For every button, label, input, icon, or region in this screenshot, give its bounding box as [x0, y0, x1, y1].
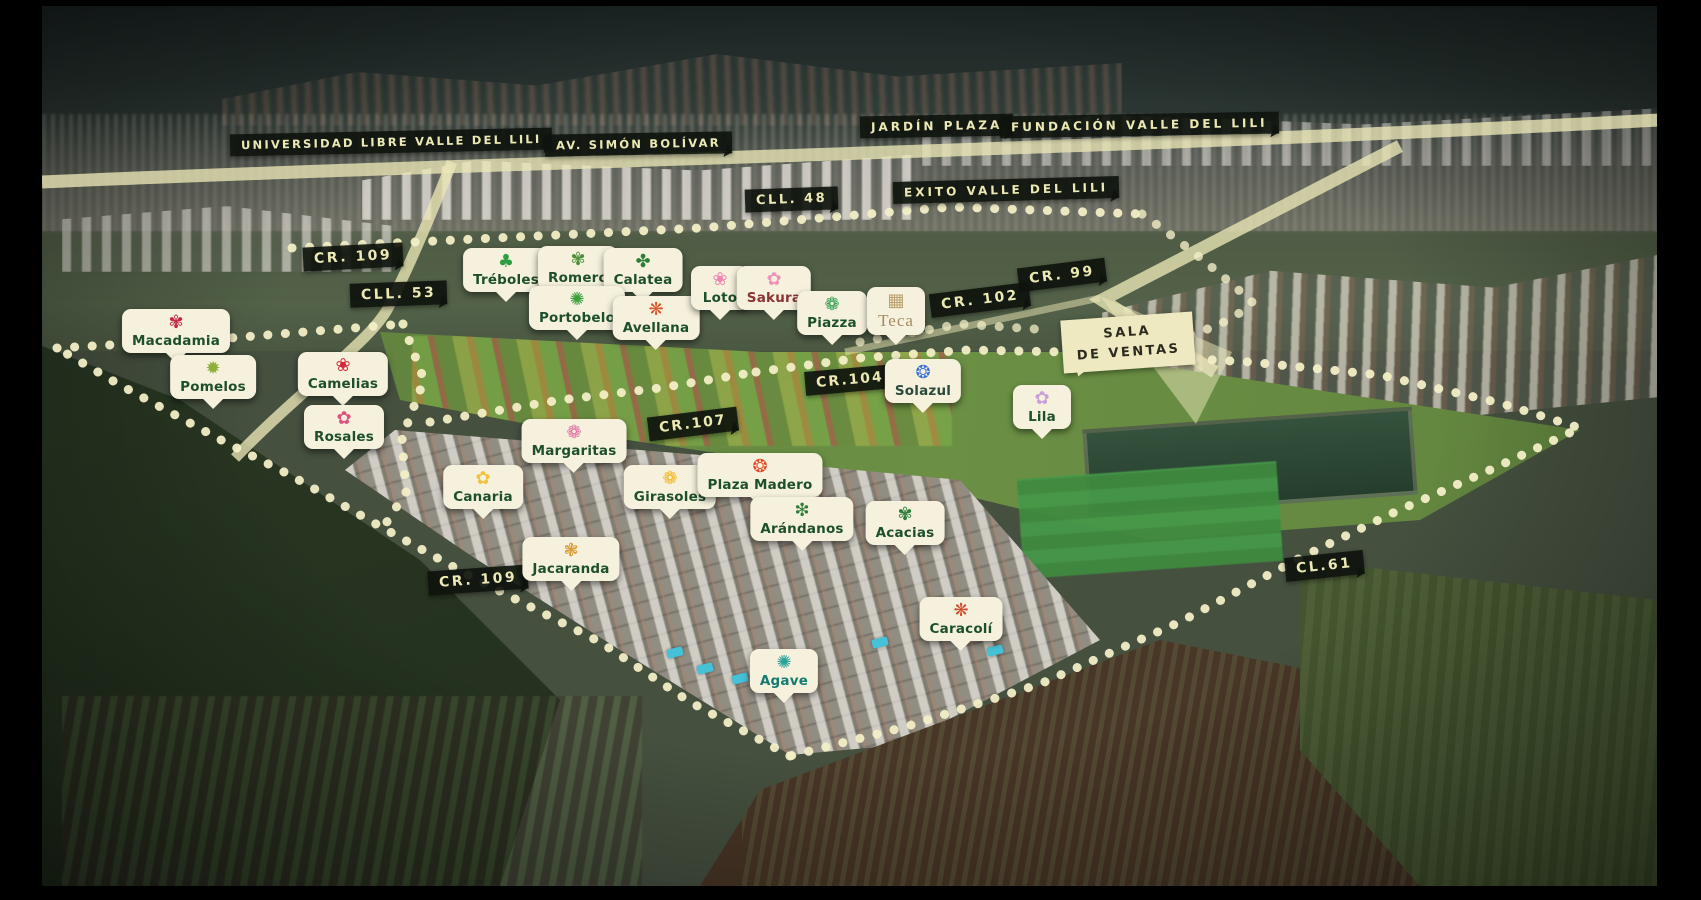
marker-label: Lila	[1023, 409, 1061, 425]
marker-macadamia[interactable]: ✾Macadamia	[122, 309, 230, 353]
marker-label: Agave	[760, 673, 808, 689]
marker-canaria[interactable]: ✿Canaria	[443, 465, 523, 509]
marker-label: Teca	[877, 311, 915, 331]
macadamia-flower-icon: ✾	[132, 314, 220, 333]
lila-flower-icon: ✿	[1023, 390, 1061, 409]
rosales-flower-icon: ✿	[314, 410, 374, 429]
marker-caracoli[interactable]: ❋Caracolí	[920, 597, 1003, 641]
letterbox-bottom	[0, 886, 1701, 900]
marker-plaza-madero[interactable]: ❂Plaza Madero	[698, 453, 823, 497]
letterbox-right	[1657, 0, 1701, 900]
marker-portobelo[interactable]: ✺Portobelo	[529, 286, 625, 330]
marker-label: Caracolí	[930, 621, 993, 637]
marker-label: Avellana	[623, 320, 690, 336]
dotted-boundary-west-inner	[383, 324, 424, 528]
marker-label: Camelias	[308, 376, 378, 392]
marker-camelias[interactable]: ❀Camelias	[298, 352, 388, 396]
canaria-flower-icon: ✿	[453, 470, 513, 489]
jacaranda-flower-icon: ❃	[532, 542, 609, 561]
marker-arandanos[interactable]: ❇Arándanos	[750, 497, 853, 541]
marker-jacaranda[interactable]: ❃Jacaranda	[522, 537, 619, 581]
marker-label: Tréboles	[473, 272, 539, 288]
marker-label: Pomelos	[180, 379, 246, 395]
marker-label: Plaza Madero	[708, 477, 813, 493]
masterplan-aerial-map: UNIVERSIDAD LIBRE VALLE DEL LILIAV. SIMÓ…	[0, 0, 1701, 900]
road-label-cll-48: CLL. 48	[745, 186, 839, 212]
marker-label: Sakura	[747, 290, 801, 306]
sala-line2: DE VENTAS	[1076, 341, 1181, 363]
acacias-flower-icon: ✾	[876, 506, 935, 525]
letterbox-left	[0, 0, 42, 900]
marker-agave[interactable]: ✺Agave	[750, 649, 818, 693]
marker-label: Jacaranda	[532, 561, 609, 577]
marker-acacias[interactable]: ✾Acacias	[866, 501, 945, 545]
road-label-av-simon-bolivar: AV. SIMÓN BOLÍVAR	[545, 131, 732, 156]
agave-flower-icon: ✺	[760, 654, 808, 673]
marker-pomelos[interactable]: ✹Pomelos	[170, 355, 256, 399]
marker-label: Rosales	[314, 429, 374, 445]
pomelos-flower-icon: ✹	[180, 360, 246, 379]
marker-label: Acacias	[876, 525, 935, 541]
sala-de-ventas-badge: SALA DE VENTAS	[1060, 311, 1195, 373]
marker-label: Arándanos	[760, 521, 843, 537]
letterbox-top	[0, 0, 1701, 6]
arandanos-flower-icon: ❇	[760, 502, 843, 521]
loto-flower-icon: ❀	[701, 271, 739, 290]
marker-margaritas[interactable]: ❁Margaritas	[522, 419, 627, 463]
romero-flower-icon: ✾	[548, 251, 608, 270]
margaritas-flower-icon: ❁	[532, 424, 617, 443]
marker-label: Loto	[701, 290, 739, 306]
marker-label: Canaria	[453, 489, 513, 505]
marker-lila[interactable]: ✿Lila	[1013, 385, 1071, 429]
sala-line1: SALA	[1103, 323, 1152, 341]
marker-label: Girasoles	[634, 489, 706, 505]
calatea-flower-icon: ✤	[614, 253, 673, 272]
marker-label: Margaritas	[532, 443, 617, 459]
marker-label: Calatea	[614, 272, 673, 288]
caracoli-flower-icon: ❋	[930, 602, 993, 621]
dotted-boundary-east	[756, 350, 1580, 756]
marker-label: Portobelo	[539, 310, 615, 326]
dotted-boundary-southwest	[57, 348, 790, 756]
teca-flower-icon: ▦	[877, 292, 915, 311]
portobelo-flower-icon: ✺	[539, 291, 615, 310]
marker-teca[interactable]: ▦Teca	[867, 287, 925, 335]
marker-solazul[interactable]: ❂Solazul	[885, 359, 961, 403]
treboles-flower-icon: ♣	[473, 253, 539, 272]
solazul-flower-icon: ❂	[895, 364, 951, 383]
piazza-flower-icon: ❁	[807, 296, 857, 315]
avellana-flower-icon: ❋	[623, 301, 690, 320]
marker-piazza[interactable]: ❁Piazza	[797, 291, 867, 335]
road-label-jardin-plaza: JARDÍN PLAZA	[860, 114, 1014, 139]
marker-label: Romero	[548, 270, 608, 286]
girasoles-flower-icon: ❁	[634, 470, 706, 489]
sakura-flower-icon: ✿	[747, 271, 801, 290]
road-label-cll-53: CLL. 53	[350, 280, 448, 307]
marker-label: Piazza	[807, 315, 857, 331]
marker-avellana[interactable]: ❋Avellana	[613, 296, 700, 340]
marker-rosales[interactable]: ✿Rosales	[304, 405, 384, 449]
marker-label: Solazul	[895, 383, 951, 399]
camelias-flower-icon: ❀	[308, 357, 378, 376]
plaza-madero-flower-icon: ❂	[708, 458, 813, 477]
marker-label: Macadamia	[132, 333, 220, 349]
